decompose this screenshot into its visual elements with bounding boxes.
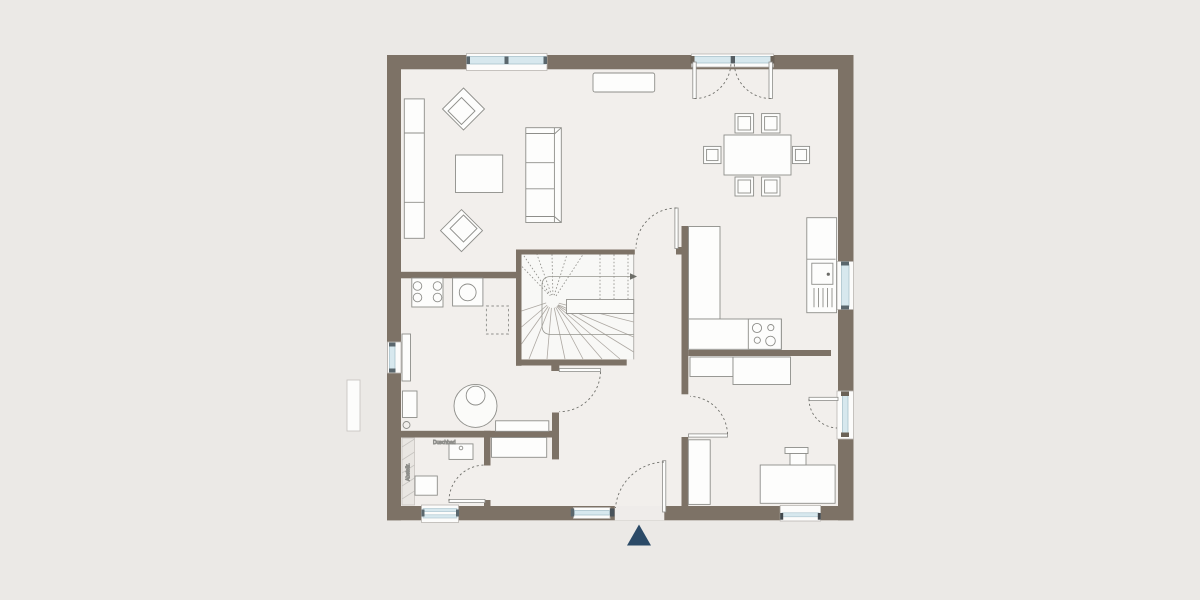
- svg-text:Abstellr.: Abstellr.: [406, 463, 412, 481]
- svg-text:Duschbad: Duschbad: [433, 440, 456, 446]
